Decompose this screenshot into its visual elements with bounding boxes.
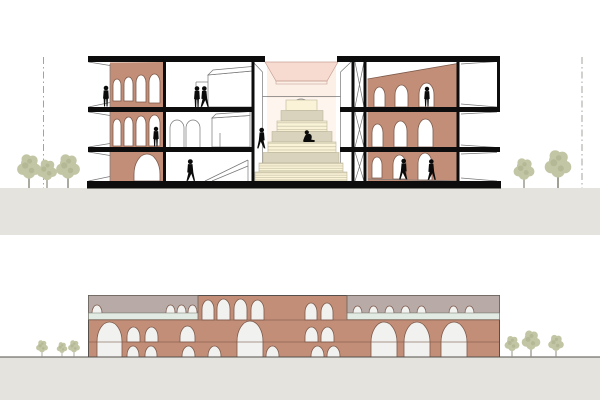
tree <box>514 158 535 188</box>
interior-volumes <box>170 67 252 182</box>
architectural-drawing-page <box>0 0 600 400</box>
person-walk-silhouette <box>257 128 265 149</box>
shaft-cross-bracing <box>355 62 364 181</box>
floor-slab-2-left <box>88 107 254 112</box>
person-walk-silhouette <box>201 86 209 107</box>
roof-slab-right <box>337 56 500 62</box>
tree <box>505 336 520 357</box>
section-trees-right <box>514 150 572 188</box>
right-gallery-wall <box>368 64 458 182</box>
drawing-svg <box>0 0 600 400</box>
atrium-wall-left <box>252 62 255 181</box>
tree <box>68 340 80 357</box>
section-building <box>87 56 501 189</box>
base-slab <box>87 181 501 189</box>
atrium-wall-right <box>352 56 355 181</box>
ribbon-window-left <box>89 313 199 320</box>
person-walk-silhouette <box>186 159 195 181</box>
cut-wall-left <box>163 62 166 181</box>
ribbon-window-right <box>347 313 500 320</box>
section-drawing <box>0 56 600 235</box>
tree <box>37 160 57 188</box>
tree <box>56 154 80 188</box>
end-wall-right <box>497 56 500 112</box>
section-trees-left <box>17 154 80 188</box>
tree <box>522 331 541 357</box>
tree <box>545 150 572 188</box>
person-stand-silhouette <box>194 86 200 107</box>
left-gallery-wall <box>89 62 164 181</box>
elevation-trees-right <box>505 331 564 357</box>
tree <box>36 340 48 357</box>
elevation-drawing <box>0 296 600 400</box>
section-ground <box>0 188 600 235</box>
tree <box>57 342 67 357</box>
floor-slab-3-left <box>88 147 254 152</box>
elevation-trees-left <box>36 340 80 357</box>
shaft-wall <box>364 56 367 181</box>
tree <box>548 335 564 357</box>
cut-wall-right <box>457 62 460 181</box>
right-end-gallery <box>461 62 497 182</box>
elevation-ground <box>0 357 600 400</box>
roof-slab-left <box>88 56 265 62</box>
